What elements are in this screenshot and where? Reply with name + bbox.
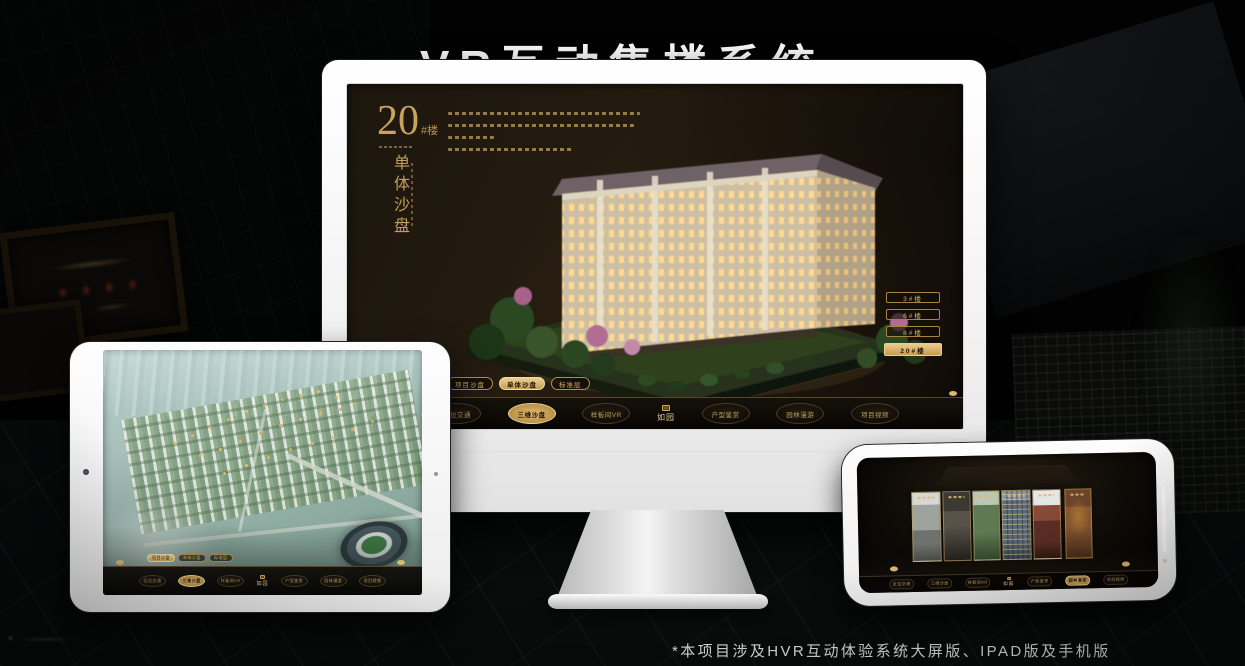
panel-caption [978,495,993,497]
nav-item-3d-sandtable[interactable]: 三维沙盘 [178,575,205,587]
phone-speaker-pill [1160,485,1167,553]
brand-logo: 如园 [256,575,268,587]
tablet-navbar: 区位交通 三维沙盘 样板间VR 如园 户型鉴赏 园林漫游 项目视频 [103,566,422,595]
monitor-sandtable-tabs: 项目沙盘 单体沙盘 标准层 [447,377,590,390]
scroll-menu-icon[interactable] [1122,565,1128,589]
nav-item-garden-roam[interactable]: 园林漫游 [1065,575,1090,586]
nav-item-floorplans[interactable]: 户型鉴赏 [702,403,750,424]
building-button-8[interactable]: 8#楼 [886,326,940,337]
phone-screen: 区位交通 三维沙盘 样板间VR 如园 户型鉴赏 园林漫游 项目视频 [857,452,1159,593]
nav-item-showroom-vr[interactable]: 样板间VR [217,575,244,587]
tablet-screen: 项目沙盘 单体沙盘 标准层 区位交通 三维沙盘 样板间VR 如园 户型鉴赏 园林… [103,350,422,595]
nav-item-project-video[interactable]: 项目视频 [359,575,386,587]
nav-item-3d-sandtable[interactable]: 三维沙盘 [927,578,952,589]
tab-project-sandtable[interactable]: 项目沙盘 [147,554,175,562]
nav-item-floorplans[interactable]: 户型鉴赏 [281,575,308,587]
panel-caption [949,496,965,498]
footnote-text: *本项目涉及HVR互动体验系统大屏版、IPAD版及手机版 [672,640,1111,661]
brand-seal-icon [662,405,670,411]
brand-seal-icon [1007,577,1011,580]
gallery-panel[interactable] [1001,490,1031,561]
scroll-menu-icon[interactable] [397,563,403,589]
nav-item-garden-roam[interactable]: 园林漫游 [776,403,824,424]
scroll-menu-icon[interactable] [116,563,122,589]
nav-item-project-video[interactable]: 项目视频 [851,403,899,424]
tab-single-sandtable[interactable]: 单体沙盘 [499,377,545,390]
tab-project-sandtable[interactable]: 项目沙盘 [447,377,493,390]
gallery-panel[interactable] [972,490,1000,561]
building-button-20[interactable]: 20#楼 [884,343,942,356]
brand-logo: 如园 [657,405,675,423]
building-button-3[interactable]: 3#楼 [886,292,940,303]
brand-logo: 如园 [1003,577,1014,587]
background-gold-logo [2,624,74,652]
panel-caption [1008,495,1024,497]
tablet-sandtable-tabs: 项目沙盘 单体沙盘 标准层 [147,554,233,562]
brand-logo-text: 如园 [657,412,675,423]
tab-standard-floor[interactable]: 标准层 [209,554,233,562]
gallery-panel[interactable] [1064,488,1092,559]
nav-item-3d-sandtable[interactable]: 三维沙盘 [508,403,556,424]
tab-standard-floor[interactable]: 标准层 [551,377,590,390]
gallery-panel[interactable] [911,491,941,562]
nav-item-garden-roam[interactable]: 园林漫游 [320,575,347,587]
tablet-camera-icon [83,469,89,475]
building-markers[interactable] [103,350,106,353]
poster: VR互动售楼系统 20#楼 单体沙盘 [0,0,1245,666]
building-button-6[interactable]: 6#楼 [886,309,940,320]
tablet-device: 项目沙盘 单体沙盘 标准层 区位交通 三维沙盘 样板间VR 如园 户型鉴赏 园林… [70,342,450,612]
gallery-panel[interactable] [942,491,971,562]
nav-item-floorplans[interactable]: 户型鉴赏 [1027,576,1052,587]
nav-item-showroom-vr[interactable]: 样板间VR [965,577,990,588]
tab-single-sandtable[interactable]: 单体沙盘 [178,554,206,562]
nav-item-location[interactable]: 区位交通 [139,575,166,587]
panel-caption [918,497,934,499]
panel-caption [1039,494,1055,496]
gallery-panel[interactable] [1032,489,1061,560]
brand-logo-text: 如园 [1003,581,1014,587]
monitor-stand-base [548,594,768,609]
brand-logo-text: 如园 [256,580,268,587]
scroll-menu-icon[interactable] [890,569,896,593]
panel-caption [1070,493,1085,495]
nav-item-showroom-vr[interactable]: 样板间VR [582,403,630,424]
tablet-side-button [434,472,438,476]
brand-seal-icon [260,575,265,579]
phone-device: 区位交通 三维沙盘 样板间VR 如园 户型鉴赏 园林漫游 项目视频 [841,439,1176,607]
phone-camera-icon [1163,559,1167,563]
building-selector: 3#楼 6#楼 8#楼 20#楼 [884,292,942,356]
background-trees-right [1135,200,1245,480]
monitor-stand-neck [557,510,758,598]
